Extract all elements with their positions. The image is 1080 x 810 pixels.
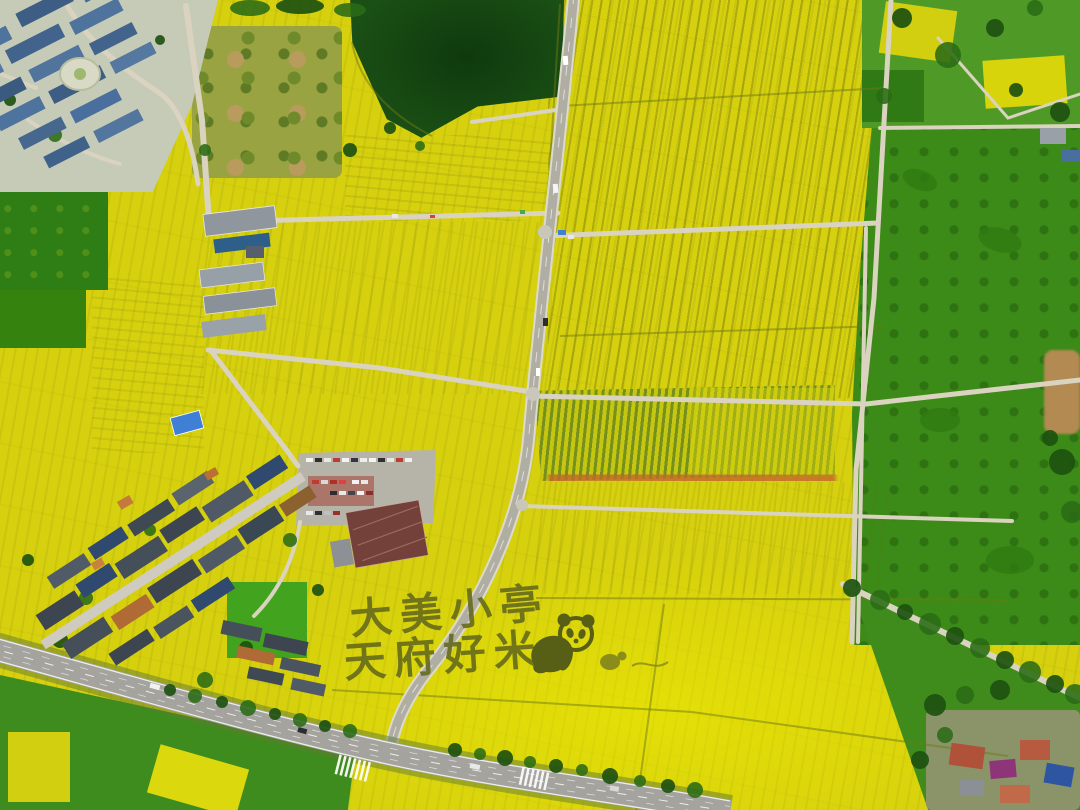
tree [319,720,331,732]
field-line [536,598,1008,600]
tree [22,554,34,566]
building-roof [290,678,326,697]
car [324,458,331,462]
track [212,352,298,466]
tree [164,684,176,696]
car [306,511,313,515]
tree [996,651,1014,669]
tree [240,700,256,716]
car [357,491,364,495]
vehicle [563,56,569,65]
car [321,480,328,484]
tree [870,590,890,610]
car [361,480,368,484]
car [352,480,359,484]
car [330,480,337,484]
tree [892,8,912,28]
vehicle [543,318,548,326]
car [351,458,358,462]
building-roof [110,42,157,74]
building-roof [330,538,354,567]
car [369,458,376,462]
tree [197,672,213,688]
track [208,350,532,392]
tree [415,141,425,151]
field-line [560,326,884,336]
building-roof [199,262,265,288]
tree [687,782,703,798]
tree [549,759,563,773]
vehicle [430,215,435,218]
map-overlay: 大美小亭 天府好米 [0,0,1080,810]
tree [935,42,961,68]
car [360,458,367,462]
playground-lawn [74,68,86,80]
panda-ear [558,614,571,627]
building-roof [153,605,194,639]
track [186,6,209,222]
building-roof [949,743,986,770]
paddy-edge-line [352,42,432,136]
farm-buildings [199,206,277,338]
track [532,380,1080,404]
tree [269,708,281,720]
tree [474,748,486,760]
building-roof [191,577,236,613]
track [472,110,556,122]
dark-crop-patch [900,164,941,195]
tree [384,122,396,134]
field-boundary-lines [332,4,1008,810]
building-roof [1062,150,1080,162]
tree [1050,102,1070,122]
car [348,491,355,495]
building-roof [220,620,262,642]
tree [1061,501,1080,523]
tree [911,751,929,769]
car [378,458,385,462]
car [339,480,346,484]
dark-crop-patch [976,223,1025,258]
tree [1049,449,1075,475]
car [333,458,340,462]
tree [946,627,964,645]
tree [343,143,357,157]
building-roof [201,314,266,338]
car [342,458,349,462]
building-roof [989,759,1016,779]
road-junction [526,387,540,401]
tree [924,694,946,716]
creature-body [600,654,620,670]
car [396,458,403,462]
tree [970,638,990,658]
tree [1009,83,1023,97]
hedgerow [334,3,366,17]
panda-ear [582,615,595,628]
tree [1065,684,1080,704]
track [544,223,878,236]
tree [312,584,324,596]
car [315,458,322,462]
tree [576,764,588,776]
panda-nose [574,639,579,644]
tree [497,750,513,766]
tree [155,35,165,45]
car [405,458,412,462]
tree [897,604,913,620]
tree [199,144,211,156]
building-roof [203,288,277,315]
building-roof [93,109,143,143]
tree [602,768,618,784]
creature-head [618,652,627,661]
car [312,480,319,484]
tree [919,613,941,635]
building-roof [88,526,129,560]
hedgerow [230,0,270,16]
tree [661,779,675,793]
tree [1019,661,1041,683]
tree [216,696,228,708]
dark-crop-patch [920,408,960,432]
panda-eye-patch [577,628,586,639]
car [366,491,373,495]
orange-tree-row [548,475,836,480]
tree [843,579,861,597]
building-roof [203,206,277,237]
aerial-photo-scene: 大美小亭 天府好米 [0,0,1080,810]
blue-roof-building [170,410,204,435]
tree [876,88,892,104]
tree [448,743,462,757]
track [522,506,1012,521]
car [330,491,337,495]
building-roof [15,0,73,27]
tree [634,775,646,787]
crop-art-squiggle [632,662,668,666]
crop-art: 大美小亭 天府好米 [342,578,668,687]
tree [1027,0,1043,16]
building-roof [108,629,154,666]
building-roof [89,22,138,55]
tree [524,756,536,768]
vehicle [553,184,559,193]
car [324,511,331,515]
tree [1046,675,1064,693]
junction-canopy [558,230,566,235]
tree [956,686,974,704]
car [387,458,394,462]
building-roof [1020,740,1050,760]
tree [343,724,357,738]
building-roof [70,88,122,123]
hedgerow [276,0,324,14]
road-junction [538,225,552,239]
roadside-stall [520,210,525,214]
building-roof [80,0,131,3]
tree [188,689,202,703]
car [306,458,313,462]
tree [283,533,297,547]
village-branch-blocks [212,620,335,697]
vehicle [536,368,540,376]
car [315,511,322,515]
building-roof [1040,128,1066,144]
building-roof [236,646,276,666]
tree [293,713,307,727]
field-line [560,88,884,106]
vehicle [392,214,398,218]
building-roof [1000,785,1030,803]
building-roof [960,780,984,796]
junction-booth [568,235,574,239]
dark-crop-patch [986,546,1034,574]
building-roof [246,246,264,258]
road-junction [516,499,528,511]
tree [986,19,1004,37]
building-roof [117,495,134,510]
building-roof [247,666,285,685]
car [333,511,340,515]
building-roof [1043,763,1074,788]
building-roof [279,657,321,677]
track [880,126,1080,128]
tree [937,727,953,743]
visitor-center [330,500,429,568]
tree [1042,430,1058,446]
tree [990,680,1010,700]
panda-eye-patch [565,627,574,638]
car [339,491,346,495]
